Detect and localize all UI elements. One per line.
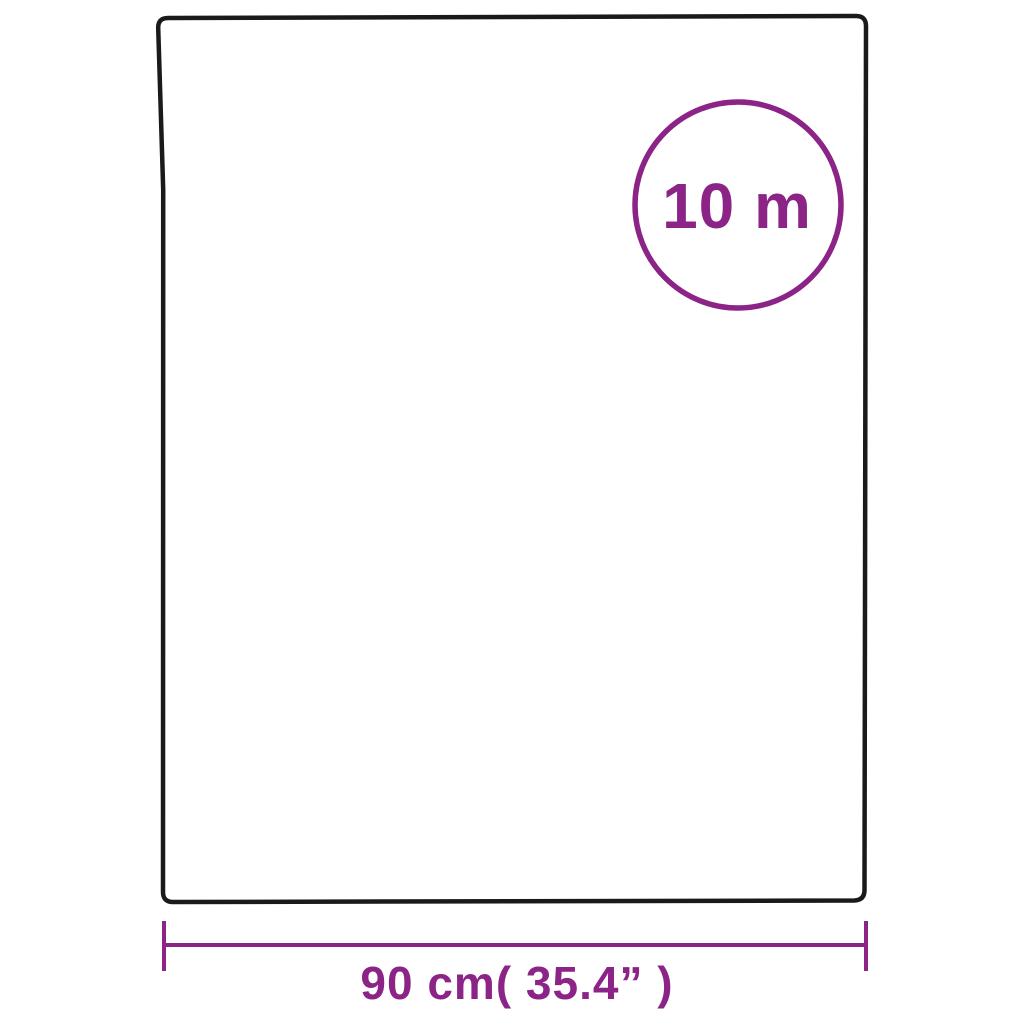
- diagram-svg: 10 m 90 cm( 35.4” ): [0, 0, 1024, 1024]
- product-dimension-diagram: 10 m 90 cm( 35.4” ): [0, 0, 1024, 1024]
- width-dimension-label: 90 cm( 35.4” ): [360, 957, 673, 1009]
- length-badge-label: 10 m: [662, 170, 812, 242]
- width-dimension: 90 cm( 35.4” ): [164, 921, 866, 1009]
